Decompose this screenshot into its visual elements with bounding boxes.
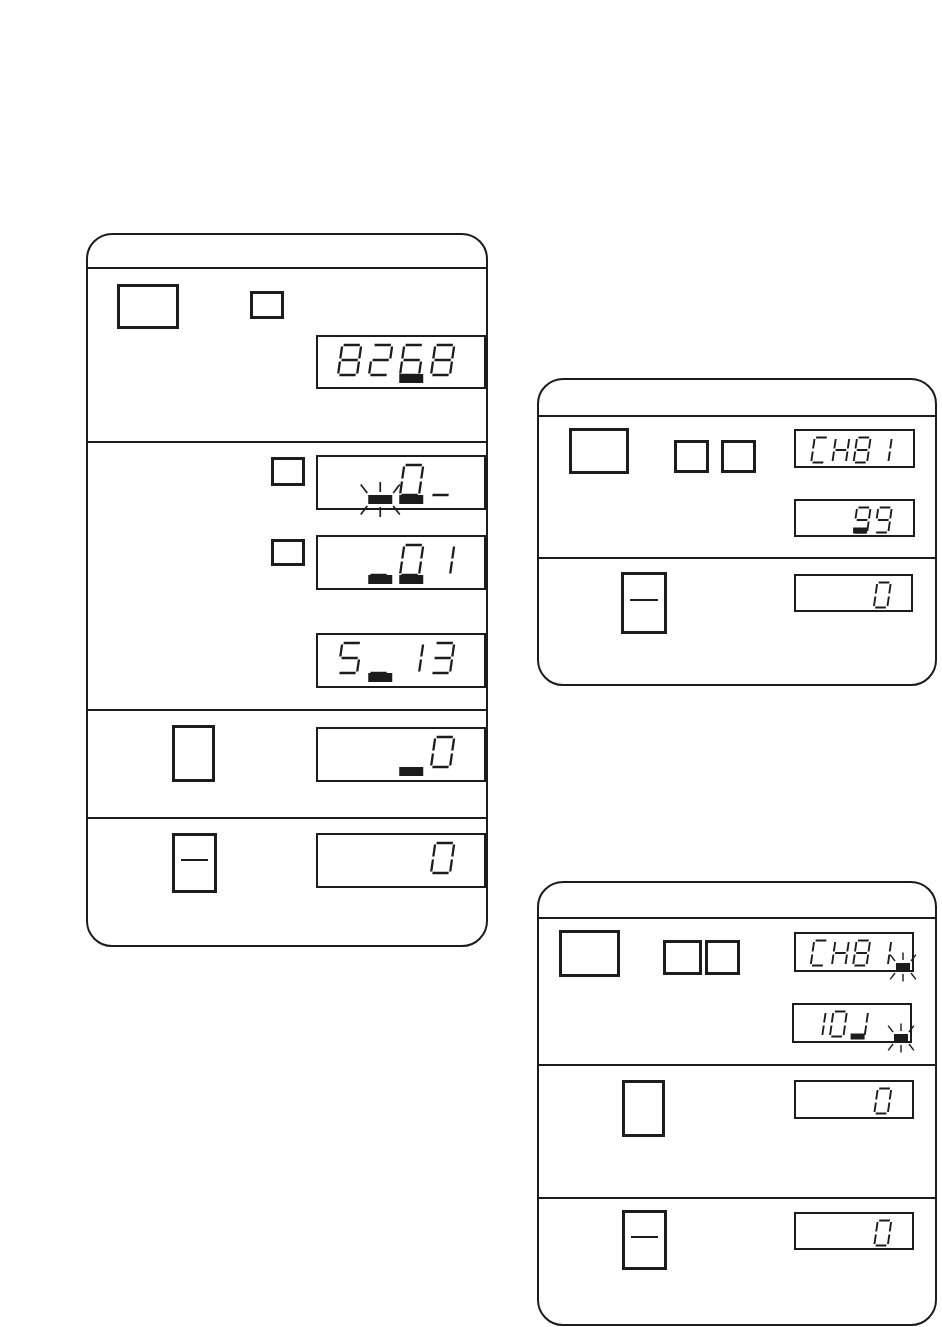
panel-bottom-right-header-line — [539, 917, 935, 919]
small-key — [271, 457, 305, 486]
lcd-display-0 — [316, 833, 486, 888]
panel-left-divider-3 — [88, 817, 486, 819]
small-key — [674, 440, 709, 473]
panel-left-divider-2 — [88, 709, 486, 711]
lcd-display-99 — [794, 499, 915, 537]
lcd-display-101-blinking — [792, 1003, 912, 1043]
lcd-display-8268 — [316, 335, 486, 389]
panel-top-right-divider-1 — [539, 557, 935, 559]
lcd-display-0 — [794, 574, 913, 612]
lcd-display-5-13 — [316, 633, 486, 688]
panel-top-right-header-line — [539, 415, 935, 417]
panel-bottom-right — [537, 881, 937, 1326]
panel-left-divider-1 — [88, 441, 486, 443]
lcd-display-0 — [794, 1080, 914, 1119]
lcd-display-01 — [316, 535, 486, 590]
panel-top-right — [537, 378, 937, 686]
lcd-display-ch81 — [794, 429, 915, 468]
plain-key — [622, 1080, 665, 1137]
small-key — [250, 291, 284, 319]
large-key — [559, 930, 620, 977]
minus-key — [621, 572, 667, 634]
manual-figure-canvas — [0, 0, 942, 1327]
lcd-display-0-cursor — [316, 727, 486, 782]
panel-left — [86, 233, 488, 947]
small-key — [721, 440, 756, 473]
small-key — [663, 940, 702, 975]
large-key — [117, 284, 179, 329]
lcd-display-ch81-blinking — [794, 932, 914, 972]
plain-key — [172, 725, 215, 782]
minus-key — [622, 1210, 667, 1270]
small-key — [271, 539, 305, 566]
lcd-display-0 — [794, 1212, 914, 1250]
panel-bottom-right-divider-1 — [539, 1064, 935, 1066]
small-key — [705, 940, 740, 975]
lcd-display-0-blinking — [316, 455, 486, 510]
panel-bottom-right-divider-2 — [539, 1197, 935, 1199]
panel-left-header-line — [88, 267, 486, 269]
minus-key — [172, 833, 217, 893]
large-key — [569, 428, 629, 474]
